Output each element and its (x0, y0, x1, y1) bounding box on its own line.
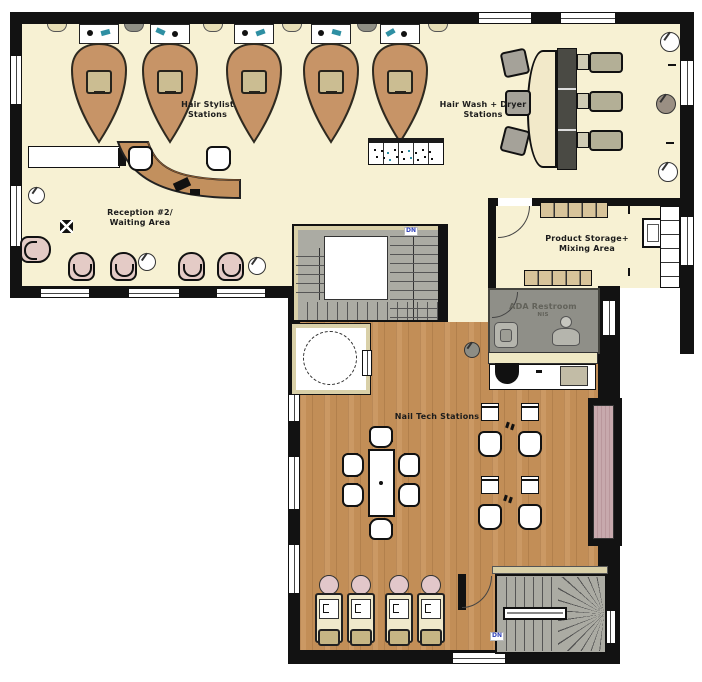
nail-table (521, 476, 539, 494)
middle-stair-dn-label: DN (404, 227, 418, 236)
pedicure-ball-chair (319, 575, 339, 595)
window-lower-left-2 (288, 456, 300, 510)
plant-icon (464, 342, 480, 358)
station-tool-shelf (311, 24, 351, 44)
footbath-jet-icon (323, 604, 329, 613)
ada-restroom-label: ADA Restroom NIS (493, 302, 593, 319)
window-top-1 (478, 12, 532, 24)
wash-sink (577, 93, 589, 109)
stylist-chair (241, 70, 267, 94)
storage-cabinet-column (660, 206, 680, 288)
pedicure-stool (388, 629, 410, 646)
plant-icon (656, 94, 676, 114)
outlet-icon (628, 268, 630, 276)
outlet-icon (668, 64, 676, 66)
label-line: Stations (188, 110, 227, 120)
turning-circle (303, 331, 357, 385)
pedicure-footbath (421, 599, 441, 619)
manicure-table-outlet-icon (379, 481, 383, 485)
manicure-chair (369, 426, 393, 448)
dryer-icon (401, 31, 407, 37)
plant-icon (138, 253, 156, 271)
storage-shelving-top (540, 202, 608, 218)
manicure-chair (369, 518, 393, 540)
bench-seat (593, 405, 614, 539)
window-ada-right (602, 300, 616, 336)
dryer-icon (242, 30, 248, 36)
pedicure-footbath (389, 599, 409, 619)
hair-stylist-stations-label: Hair Stylist Stations (160, 100, 255, 120)
label-line: Mixing Area (559, 244, 615, 254)
plant-icon (248, 257, 266, 275)
label-line: Reception #2/ (107, 208, 173, 218)
window-left-2 (10, 185, 22, 247)
nail-chair (518, 504, 542, 530)
stylist-chair (318, 70, 344, 94)
product-items-icon (376, 156, 378, 158)
dryer-icon (87, 30, 93, 36)
wash-divider-wall (557, 48, 577, 170)
color-bar-counter (368, 140, 444, 165)
nail-chair (478, 504, 502, 530)
stylist-chair (157, 70, 183, 94)
lower-stair-dn-label: DN (490, 632, 504, 641)
stylist-chair (387, 70, 413, 94)
waiting-chair (217, 252, 244, 281)
footbath-jet-icon (355, 604, 361, 613)
wash-recliner-chair (589, 52, 623, 73)
reception-waiting-label: Reception #2/ Waiting Area (90, 208, 190, 228)
station-tool-shelf (79, 24, 119, 44)
hair-station (71, 22, 127, 144)
product-items-icon (374, 149, 376, 151)
door-gap-product (498, 198, 532, 206)
window-left-1 (10, 55, 22, 105)
waiting-armchair (20, 236, 51, 263)
plant-icon (658, 162, 678, 182)
plant-icon (28, 187, 45, 204)
nail-chair (518, 431, 542, 457)
window-lower-left-1 (288, 394, 300, 422)
floor-outlet-icon (60, 220, 73, 233)
waiting-chair (110, 252, 137, 281)
reception-back-counter (28, 146, 120, 168)
label-subline: NIS (537, 312, 548, 319)
dryer-icon (172, 31, 178, 37)
outlet-icon (536, 370, 542, 373)
nail-table (521, 403, 539, 421)
pedicure-stool (420, 629, 442, 646)
floor-corridor (447, 288, 488, 324)
window-reception-2 (128, 288, 180, 298)
wall-product-left (488, 198, 496, 290)
middle-stair-right-wall (438, 224, 448, 322)
manicure-chair (398, 483, 420, 507)
window-reception-1 (40, 288, 90, 298)
outlet-icon (628, 206, 630, 214)
footbath-jet-icon (425, 604, 431, 613)
wash-recliner-chair (589, 91, 623, 112)
pedicure-ball-chair (389, 575, 409, 595)
outlet-icon (666, 142, 674, 144)
nail-chair (478, 431, 502, 457)
waiting-chair (178, 252, 205, 281)
label-line: Waiting Area (110, 218, 171, 228)
window-reception-3 (216, 288, 266, 298)
hair-station (226, 22, 282, 144)
guest-chair (206, 146, 231, 171)
nail-table (481, 476, 499, 494)
dryer-icon (318, 30, 324, 36)
label-line: Product Storage+ (545, 234, 629, 244)
nail-tech-stations-label: Nail Tech Stations (377, 412, 497, 422)
window-right-2 (680, 216, 694, 266)
storage-shelving-bottom (524, 270, 592, 286)
label-line: Stations (463, 110, 502, 120)
window-top-2 (560, 12, 616, 24)
elevator-door (362, 350, 372, 376)
wash-recliner-chair (589, 130, 623, 151)
station-tool-shelf (234, 24, 274, 44)
label-line: ADA Restroom (509, 302, 577, 312)
product-storage-label: Product Storage+ Mixing Area (526, 234, 648, 254)
station-tool-shelf (150, 24, 190, 44)
restroom-sink-basin (500, 329, 512, 342)
guest-chair (128, 146, 153, 171)
pedicure-footbath (351, 599, 371, 619)
wash-sink (577, 132, 589, 148)
middle-stair-bottom-flight (298, 302, 438, 320)
lower-stair-rail-line (507, 612, 563, 614)
manicure-chair (398, 453, 420, 477)
window-right-1 (680, 60, 694, 106)
pedicure-stool (350, 629, 372, 646)
label-line: Hair Stylist (181, 100, 234, 110)
pedicure-ball-chair (351, 575, 371, 595)
label-line: Hair Wash + Dryer (440, 100, 527, 110)
label-line: Nail Tech Stations (395, 412, 480, 422)
manicure-chair (342, 483, 364, 507)
reception-keyboard (190, 189, 200, 195)
lower-stair-top-band (492, 566, 608, 574)
footbath-jet-icon (393, 604, 399, 613)
toilet-bowl (552, 328, 580, 346)
salon-floor-plan: Hair Stylist Stations Hair Wash + Dryer … (0, 0, 702, 682)
mixing-sink-basin (647, 224, 659, 242)
middle-stair-landing (324, 236, 388, 300)
pedicure-stool (318, 629, 340, 646)
hair-station (372, 22, 428, 144)
pedicure-ball-chair (421, 575, 441, 595)
hair-station (142, 22, 198, 144)
stylist-chair (86, 70, 112, 94)
hair-station (303, 22, 359, 144)
wash-sink (577, 54, 589, 70)
waiting-chair (68, 252, 95, 281)
color-bar-top-edge (368, 138, 444, 143)
window-lower-left-3 (288, 544, 300, 594)
manicure-chair (342, 453, 364, 477)
hair-wash-dryer-label: Hair Wash + Dryer Stations (428, 100, 538, 120)
plant-icon (660, 32, 680, 52)
nail-table (481, 403, 499, 421)
vanity-cabinet (560, 366, 588, 386)
middle-stair-left-flight (296, 248, 324, 300)
pedicure-footbath (319, 599, 339, 619)
dryer-chair (500, 48, 531, 79)
